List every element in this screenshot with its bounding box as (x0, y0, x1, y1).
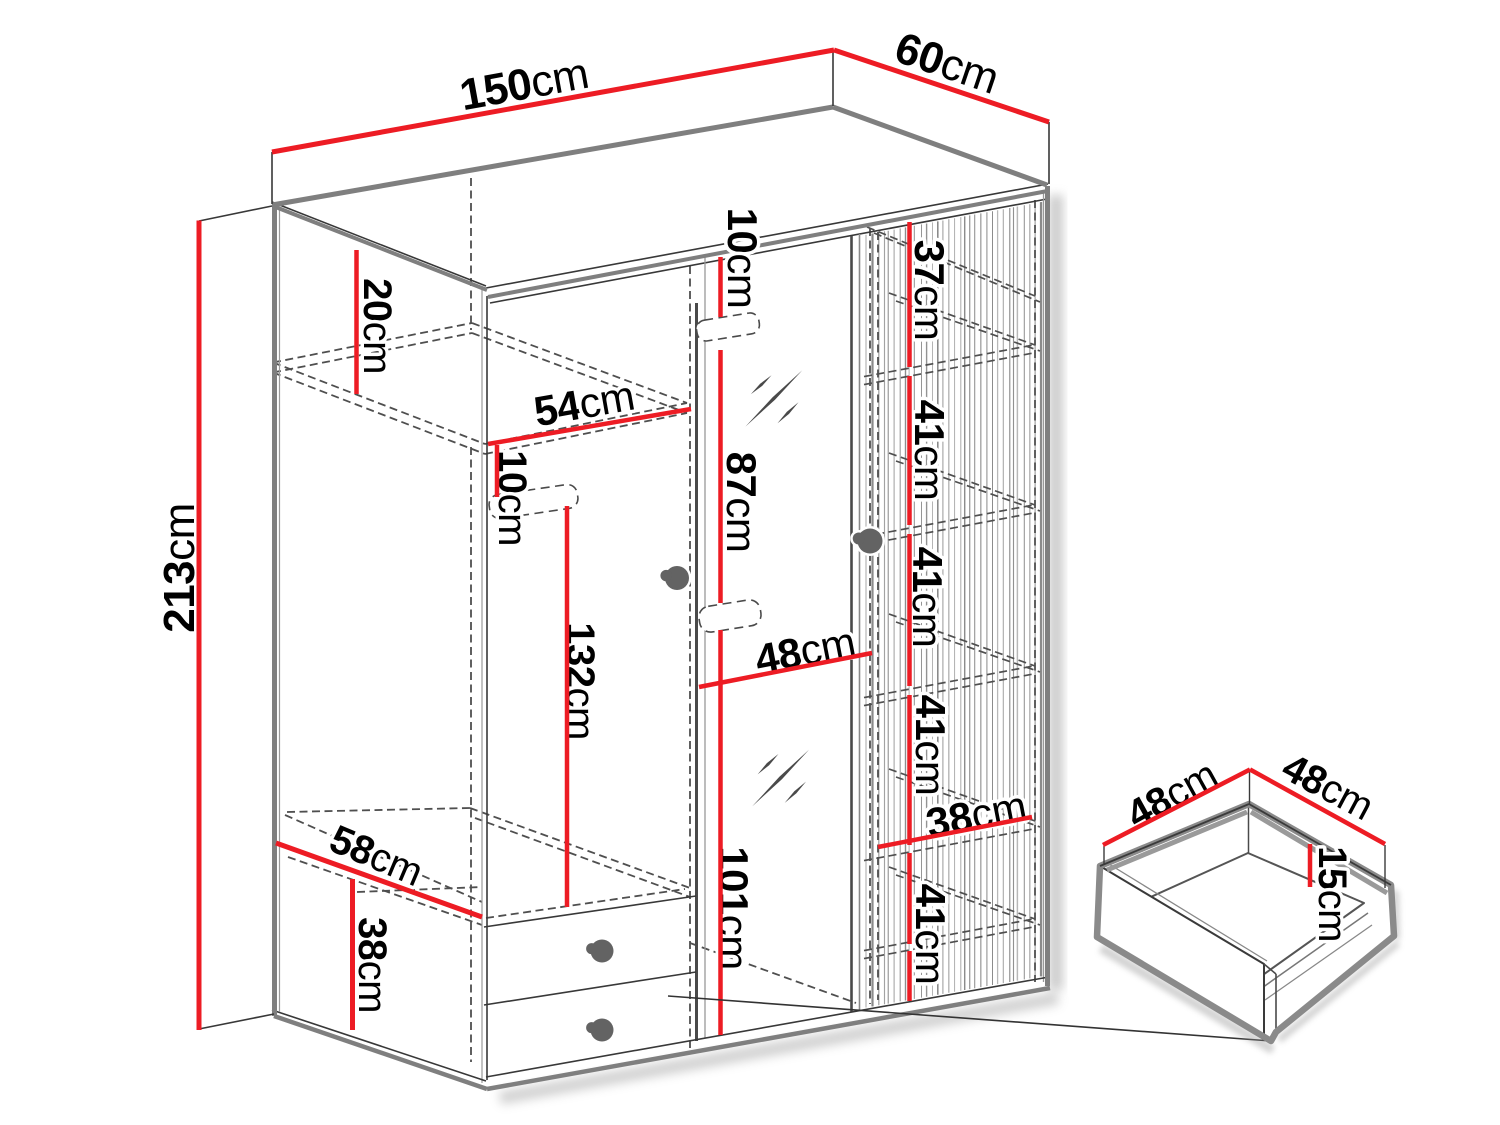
svg-text:20cm: 20cm (355, 278, 399, 374)
svg-text:38cm: 38cm (350, 917, 394, 1013)
svg-text:10cm: 10cm (720, 208, 767, 309)
svg-text:41cm: 41cm (908, 884, 955, 985)
svg-text:87cm: 87cm (719, 452, 766, 553)
svg-text:41cm: 41cm (907, 400, 954, 501)
svg-text:37cm: 37cm (907, 240, 954, 341)
svg-text:41cm: 41cm (908, 695, 955, 796)
svg-text:132cm: 132cm (558, 622, 602, 740)
svg-text:15cm: 15cm (1310, 846, 1354, 942)
svg-text:213cm: 213cm (155, 503, 204, 633)
svg-text:101cm: 101cm (711, 846, 758, 970)
